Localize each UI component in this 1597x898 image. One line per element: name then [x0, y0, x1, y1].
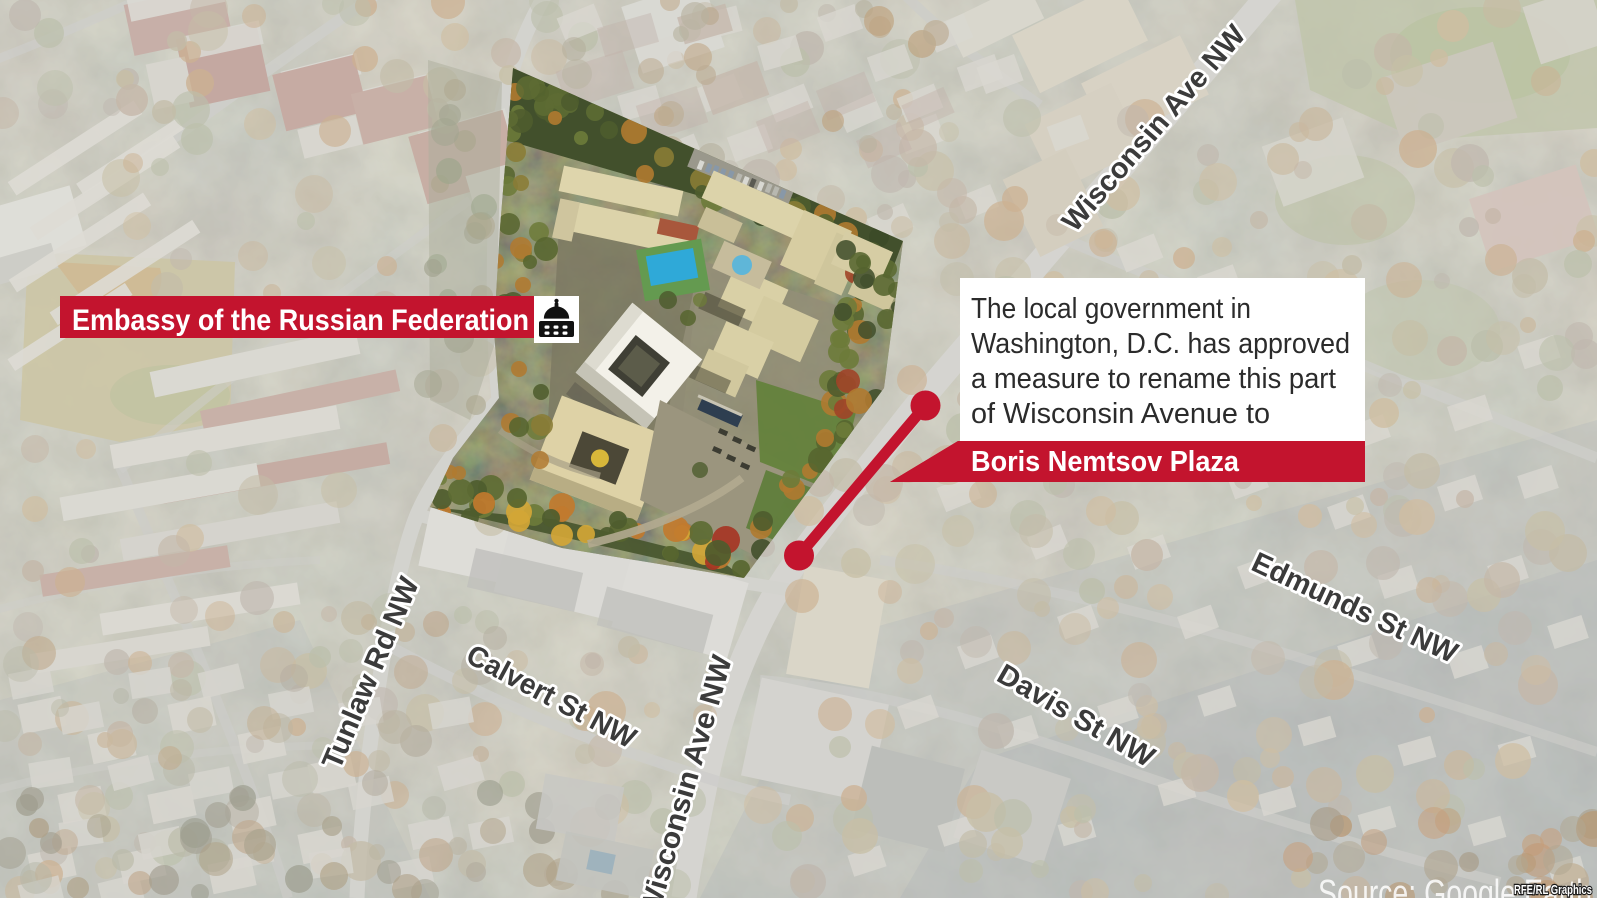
svg-text:Embassy of the Russian Federat: Embassy of the Russian Federation — [72, 304, 529, 337]
svg-text:Washington, D.C. has approved: Washington, D.C. has approved — [971, 328, 1350, 360]
svg-text:of Wisconsin Avenue to: of Wisconsin Avenue to — [971, 398, 1270, 430]
svg-text:RFE/RL Graphics: RFE/RL Graphics — [1514, 883, 1592, 897]
svg-text:a measure to rename this part: a measure to rename this part — [971, 363, 1336, 395]
svg-text:The local government in: The local government in — [971, 293, 1251, 325]
svg-text:Boris Nemtsov Plaza: Boris Nemtsov Plaza — [971, 446, 1240, 478]
